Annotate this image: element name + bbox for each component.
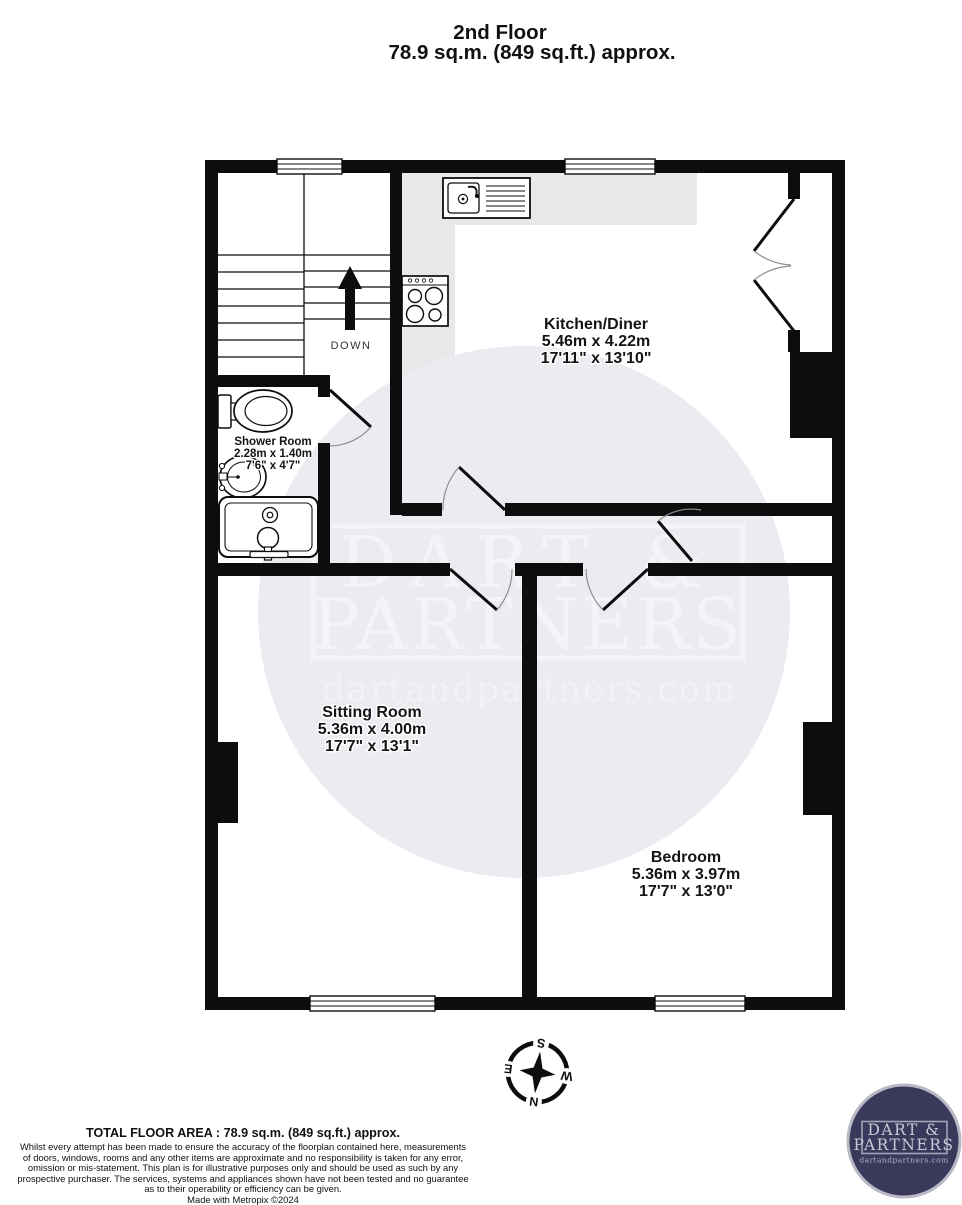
room-name: Bedroom — [651, 849, 721, 866]
kitchen-sink-icon — [443, 178, 530, 218]
wall-corridor-stub — [402, 503, 442, 516]
window-stairs — [277, 159, 342, 174]
window-bedroom — [655, 996, 745, 1011]
room-name: Sitting Room — [322, 704, 422, 721]
shower-tray-icon — [219, 497, 318, 560]
disclaimer-line: Whilst every attempt has been made to en… — [0, 1142, 486, 1153]
room-metric: 5.36m x 3.97m — [632, 866, 741, 883]
room-imperial: 7'6" x 4'7" — [246, 460, 301, 472]
compass-west-label: W — [560, 1068, 574, 1083]
agency-logo: DART & PARTNERS dartandpartners.com — [848, 1085, 960, 1197]
disclaimer-line: omission or mis-statement. This plan is … — [0, 1163, 486, 1174]
logo-line2: PARTNERS — [853, 1136, 954, 1154]
floorplan-page: { "page": { "title_line1": "2nd Floor", … — [0, 0, 962, 1200]
room-metric: 5.36m x 4.00m — [318, 721, 427, 738]
window-sitting-room — [310, 996, 435, 1011]
chimney-bedroom — [803, 722, 833, 815]
hob-icon — [402, 276, 448, 326]
compass-north-label: N — [529, 1094, 540, 1109]
total-floor-area: TOTAL FLOOR AREA : 78.9 sq.m. (849 sq.ft… — [0, 1126, 486, 1140]
compass-east-label: E — [503, 1061, 513, 1076]
wall-outer-left — [205, 160, 218, 1010]
room-label-shower: Shower Room 2.28m x 1.40m 7'6" x 4'7" — [234, 436, 312, 472]
wall-corridor-south-b — [515, 563, 583, 576]
wall-outer-right — [832, 160, 845, 1010]
wall-outer-bottom — [205, 997, 845, 1010]
wall-stairwell-right — [390, 173, 402, 515]
room-name: Shower Room — [234, 436, 311, 448]
room-label-sitting: Sitting Room 5.36m x 4.00m 17'7" x 13'1" — [318, 704, 427, 755]
floor-plan-canvas: 2nd Floor 78.9 sq.m. (849 sq.ft.) approx… — [0, 0, 962, 1200]
wall-corridor-south-c — [648, 563, 832, 576]
room-metric: 5.46m x 4.22m — [542, 333, 651, 350]
room-label-kitchen: Kitchen/Diner 5.46m x 4.22m 17'11" x 13'… — [541, 316, 652, 367]
wall-room-divider — [522, 576, 537, 997]
room-imperial: 17'11" x 13'10" — [541, 350, 652, 367]
wall-french-door-jamb-bottom — [788, 330, 800, 352]
wall-shower-jamb — [318, 375, 330, 397]
room-imperial: 17'7" x 13'1" — [325, 738, 419, 755]
page-subtitle: 78.9 sq.m. (849 sq.ft.) approx. — [388, 41, 675, 64]
chimney-kitchen — [790, 352, 832, 438]
logo-website: dartandpartners.com — [859, 1156, 948, 1165]
window-kitchen — [565, 159, 655, 174]
room-name: Kitchen/Diner — [544, 316, 648, 333]
disclaimer-line: as to their operability or efficiency ca… — [0, 1184, 486, 1195]
chimney-sitting-room — [218, 742, 238, 823]
room-metric: 2.28m x 1.40m — [234, 448, 312, 460]
toilet-icon — [218, 390, 292, 432]
wall-shower-top — [218, 375, 320, 387]
wall-kitchen-bottom — [505, 503, 837, 516]
stairs-down-label: DOWN — [331, 340, 372, 352]
wall-french-door-jamb-top — [788, 173, 800, 199]
room-imperial: 17'7" x 13'0" — [639, 883, 733, 900]
footer: TOTAL FLOOR AREA : 78.9 sq.m. (849 sq.ft… — [0, 1126, 486, 1205]
wall-shower-right — [318, 443, 330, 565]
compass-south-label: S — [536, 1035, 546, 1050]
